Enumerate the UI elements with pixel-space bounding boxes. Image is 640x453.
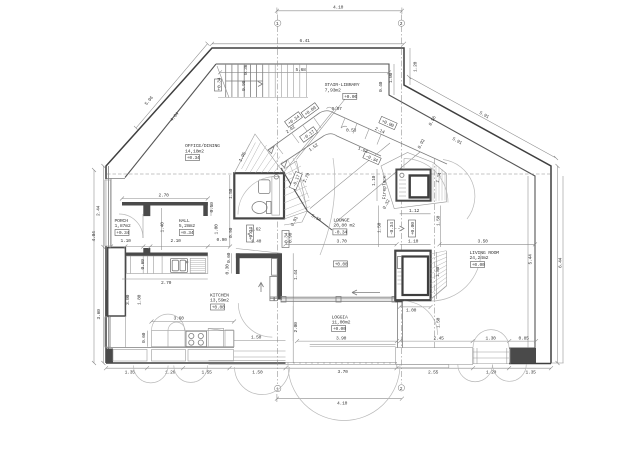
svg-text:2: 2 [400,386,403,392]
svg-text:6.41: 6.41 [300,38,311,44]
svg-text:4.10: 4.10 [333,5,344,11]
svg-text:+0.00: +0.00 [333,326,346,332]
svg-text:3.90: 3.90 [336,335,347,341]
svg-text:1.00: 1.00 [388,72,394,83]
svg-text:2.10: 2.10 [171,238,182,244]
svg-text:1.40: 1.40 [160,222,166,233]
svg-text:1.80: 1.80 [435,266,441,277]
svg-text:1.50: 1.50 [228,188,234,199]
svg-text:0.90: 0.90 [217,237,228,243]
svg-text:5.44: 5.44 [528,254,534,265]
svg-text:1.35: 1.35 [526,369,537,375]
svg-text:1,87m2: 1,87m2 [115,223,131,229]
svg-text:+0.34: +0.34 [187,155,200,161]
svg-text:+0.00: +0.00 [212,305,225,311]
svg-text:6.44: 6.44 [558,257,564,268]
svg-text:3.00: 3.00 [125,294,131,305]
svg-text:4.04: 4.04 [91,231,97,242]
svg-text:3.50: 3.50 [478,239,489,245]
svg-text:0.90: 0.90 [288,232,294,243]
svg-text:OFFICE/DINING: OFFICE/DINING [185,143,220,149]
svg-text:3.60: 3.60 [174,316,185,322]
svg-text:0.07: 0.07 [332,106,343,112]
svg-text:1.10: 1.10 [371,175,377,186]
svg-text:1.12: 1.12 [409,208,420,214]
svg-text:-0.34: -0.34 [334,230,347,236]
svg-text:11,00m2: 11,00m2 [332,320,351,326]
svg-text:1.50: 1.50 [251,335,262,341]
svg-text:0.60: 0.60 [141,332,147,343]
svg-text:3.70: 3.70 [338,369,349,375]
svg-text:-0.34: -0.34 [389,222,395,235]
svg-text:1.00: 1.00 [213,224,219,235]
svg-text:0.30: 0.30 [225,264,231,275]
svg-text:13,59m2: 13,59m2 [210,298,229,304]
svg-text:5,28m2: 5,28m2 [179,223,195,229]
svg-text:0.53: 0.53 [346,128,357,134]
svg-text:1.10: 1.10 [408,239,419,245]
svg-text:0.50: 0.50 [209,202,215,213]
svg-text:24,24m2: 24,24m2 [470,255,489,261]
svg-text:1.20: 1.20 [413,61,419,72]
svg-text:14,18m2: 14,18m2 [185,149,204,155]
svg-text:7,93m2: 7,93m2 [325,88,341,94]
svg-text:1.00: 1.00 [406,307,417,313]
svg-text:0.90: 0.90 [228,227,234,238]
svg-text:1.80: 1.80 [137,294,143,305]
svg-text:0.40: 0.40 [378,81,384,92]
svg-text:2.55: 2.55 [428,369,439,375]
svg-text:5.68: 5.68 [296,67,307,73]
svg-text:Fireplace: Fireplace [382,175,388,199]
svg-text:0.36: 0.36 [243,64,249,75]
svg-text:20,80 m2: 20,80 m2 [333,223,355,229]
svg-text:4.10: 4.10 [337,401,348,407]
svg-text:+0.34: +0.34 [116,230,129,236]
svg-text:0.60: 0.60 [140,259,146,270]
svg-text:+0.00: +0.00 [344,94,357,100]
svg-text:1.40: 1.40 [251,239,262,245]
svg-text:1.44: 1.44 [293,269,299,280]
svg-text:+0.00: +0.00 [410,222,416,235]
svg-text:3.60: 3.60 [96,309,102,320]
svg-text:2.45: 2.45 [434,335,445,341]
svg-text:+0.00: +0.00 [472,262,485,268]
svg-text:1.30: 1.30 [486,335,497,341]
svg-text:1.50: 1.50 [436,215,442,226]
svg-text:2.70: 2.70 [161,280,172,286]
svg-text:2.44: 2.44 [95,205,101,216]
svg-text:2.70: 2.70 [159,193,170,199]
svg-text:+0.00: +0.00 [335,262,348,268]
svg-text:1.50: 1.50 [252,369,263,375]
svg-text:1.50: 1.50 [377,222,383,233]
svg-text:3.70: 3.70 [337,239,348,245]
svg-text:STAIR-LIBRARY: STAIR-LIBRARY [325,82,360,88]
svg-text:0.85: 0.85 [519,335,530,341]
svg-text:1.10: 1.10 [121,238,132,244]
svg-text:+0.34: +0.34 [181,230,194,236]
svg-text:0.90: 0.90 [241,80,247,91]
svg-text:0.60: 0.60 [226,252,232,263]
